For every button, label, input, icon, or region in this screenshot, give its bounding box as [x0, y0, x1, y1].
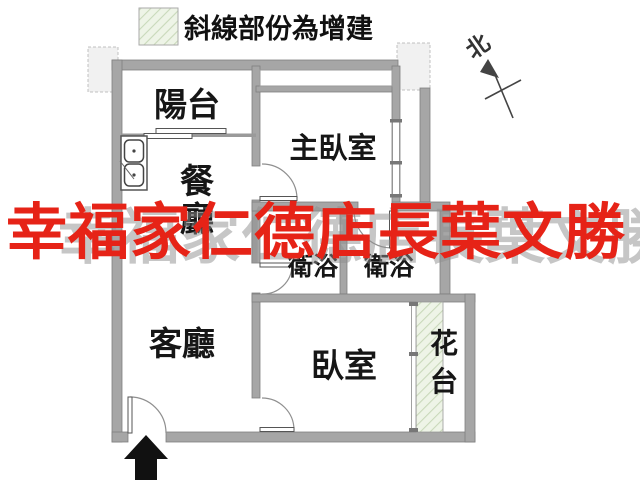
master-top-window	[260, 70, 392, 86]
wall-bath-divider	[340, 211, 347, 294]
bedroom-door-arc	[262, 398, 294, 430]
north-label: 北	[461, 29, 495, 63]
label-dining-1: 餐	[180, 163, 214, 201]
entrance-arrow-icon	[124, 435, 168, 480]
wall-outer-right-mid	[440, 211, 450, 294]
wall-left	[112, 60, 122, 442]
master-door-leaf	[260, 197, 297, 201]
label-master-bedroom: 主臥室	[289, 131, 376, 165]
bath-right-door-leaf	[390, 211, 394, 248]
north-arrow-icon: 北	[461, 29, 521, 118]
entry-door-arc	[130, 397, 166, 433]
exterior-box-top-right	[397, 43, 430, 90]
floorplan-drawing: 斜線部份為增建 北 陽台 主臥室 餐 廳 衛浴 衛浴 客廳 臥室 花 台	[0, 0, 640, 480]
entry-door-leaf	[128, 397, 132, 433]
floorplan-page: 斜線部份為增建 北 陽台 主臥室 餐 廳 衛浴 衛浴 客廳 臥室 花 台 幸福家…	[0, 0, 640, 480]
label-bath-left: 衛浴	[287, 253, 339, 281]
label-flower-1: 花	[430, 328, 458, 359]
label-bedroom: 臥室	[311, 347, 377, 384]
wall-bottom	[166, 432, 475, 442]
wall-center-lower	[252, 293, 260, 398]
wall-bedroom-top	[252, 294, 475, 302]
legend-text: 斜線部份為增建	[183, 13, 373, 44]
label-bath-right: 衛浴	[363, 253, 415, 281]
wall-outer-right-lower	[465, 294, 475, 442]
wall-bath-top-left	[252, 202, 358, 211]
bath-right-door-arc	[354, 211, 392, 248]
wall-master-window-sill	[256, 86, 398, 92]
wall-center-upper	[252, 66, 260, 166]
label-living: 客廳	[149, 325, 215, 362]
door-leaves	[128, 197, 394, 434]
master-door-arc	[262, 164, 297, 198]
label-dining-2: 廳	[180, 201, 214, 239]
wall-bath-top-right	[392, 202, 450, 211]
wall-outer-right-upper	[420, 88, 430, 202]
label-flower-2: 台	[430, 365, 458, 397]
legend-hatch-swatch	[139, 8, 178, 45]
bedroom-door-leaf	[260, 428, 294, 432]
label-balcony: 陽台	[154, 86, 220, 123]
wall-bottom-left-stub	[112, 432, 128, 442]
kitchen-sink-icon	[120, 136, 147, 190]
